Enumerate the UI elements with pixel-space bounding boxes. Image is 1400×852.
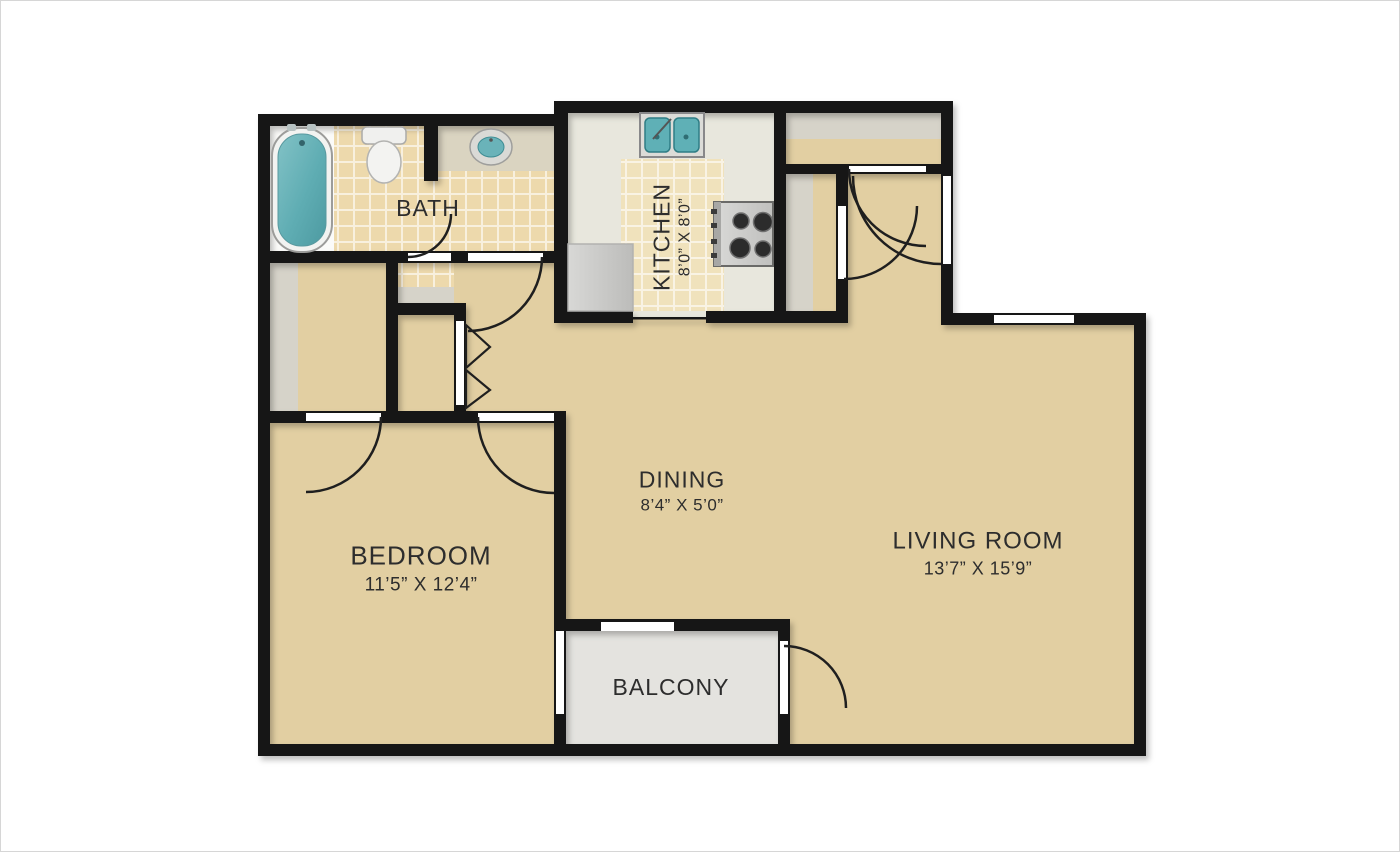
bathroom-sink-icon: [470, 129, 512, 165]
bifold-closet-opening: [456, 321, 464, 405]
bathtub-icon: [272, 124, 332, 252]
living-room-dimensions-text: 13’7” X 15’9”: [892, 558, 1063, 579]
bedroom-dimensions-text: 11’5” X 12’4”: [350, 575, 491, 597]
balcony-door-opening: [780, 641, 788, 714]
kitchen-dimensions-text: 8’0” X 8’0”: [677, 183, 695, 291]
bedroom-door-opening: [478, 413, 554, 421]
bedroom-label-text: BEDROOM: [350, 542, 491, 572]
balcony-label-text: BALCONY: [613, 674, 730, 700]
kitchen-counter-icon: [568, 244, 633, 311]
balcony-window: [556, 631, 564, 714]
kitchen-double-sink-icon: [640, 113, 704, 157]
kitchen-label: KITCHEN 8’0” X 8’0”: [649, 183, 696, 291]
entry-closet-shelf: [786, 113, 941, 139]
walkin-closet-shelf: [270, 263, 298, 411]
floor-plan-geometry: [1, 1, 1400, 852]
front-door-opening: [943, 176, 951, 264]
floors: [258, 101, 1146, 756]
dining-label-text: DINING: [639, 467, 726, 493]
kitchen-label-text: KITCHEN: [649, 183, 675, 291]
pantry-door-opening: [838, 206, 846, 279]
dining-label: DINING 8’4” X 5’0”: [639, 467, 726, 516]
hall-door-opening: [468, 253, 543, 261]
linen-closet-floor: [398, 263, 454, 303]
bath-label: BATH: [396, 195, 460, 221]
stove-icon: [711, 202, 773, 266]
living-room-window: [994, 315, 1074, 323]
bath-label-text: BATH: [396, 195, 460, 221]
dining-dimensions-text: 8’4” X 5’0”: [639, 496, 726, 516]
balcony-label: BALCONY: [613, 674, 730, 700]
closet-door-opening-left: [306, 413, 381, 421]
living-room-label: LIVING ROOM 13’7” X 15’9”: [892, 527, 1063, 578]
balcony-slider-opening: [601, 622, 674, 631]
bedroom-label: BEDROOM 11’5” X 12’4”: [350, 542, 491, 597]
pantry-shelf: [786, 174, 813, 311]
floor-plan-canvas: BATH KITCHEN 8’0” X 8’0” DINING 8’4” X 5…: [0, 0, 1400, 852]
entry-closet-door-opening: [849, 166, 926, 172]
living-room-label-text: LIVING ROOM: [892, 527, 1063, 555]
